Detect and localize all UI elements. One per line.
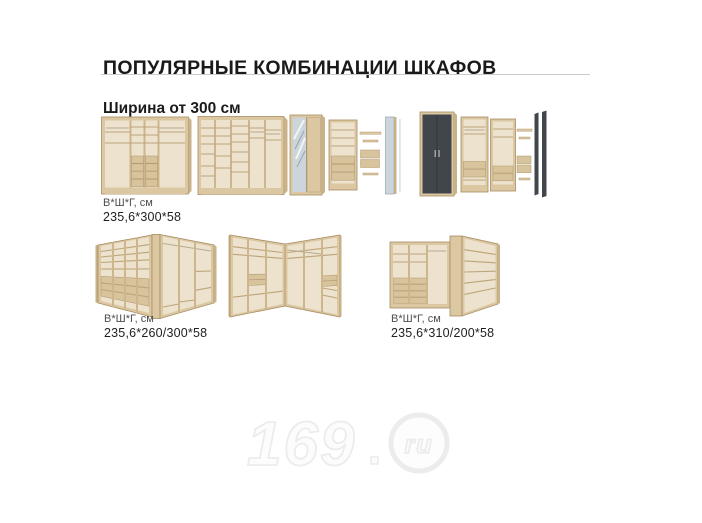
corner-wardrobe-2-image [228, 231, 342, 319]
page-title: ПОПУЛЯРНЫЕ КОМБИНАЦИИ ШКАФОВ [103, 57, 496, 80]
dimensions-caption-row2-left: В*Ш*Г, см 235,6*260/300*58 [104, 313, 207, 341]
catalog-page: ПОПУЛЯРНЫЕ КОМБИНАЦИИ ШКАФОВ Ширина от 3… [0, 0, 702, 523]
dimensions-caption-row2-right: В*Ш*Г, см 235,6*310/200*58 [391, 313, 494, 341]
corner-wardrobe-1-image [95, 232, 217, 320]
dimensions-label: В*Ш*Г, см [103, 197, 181, 209]
corner-wardrobe-3-image [388, 232, 502, 318]
title-divider [101, 74, 590, 75]
wardrobe-combo-4-image [418, 106, 548, 206]
wardrobe-combo-2-image [196, 111, 292, 203]
watermark-logo: 169 ru [245, 402, 460, 486]
dimensions-label: В*Ш*Г, см [104, 313, 207, 325]
watermark-number: 169 [247, 410, 356, 479]
wardrobe-combo-1-image [100, 112, 192, 204]
dimensions-value: 235,6*300*58 [103, 211, 181, 225]
dimensions-value: 235,6*260/300*58 [104, 327, 207, 341]
watermark-suffix: ru [405, 431, 434, 459]
dimensions-label: В*Ш*Г, см [391, 313, 494, 325]
wardrobe-combo-3-image [288, 107, 408, 205]
dimensions-value: 235,6*310/200*58 [391, 327, 494, 341]
dimensions-caption-row1: В*Ш*Г, см 235,6*300*58 [103, 197, 181, 225]
